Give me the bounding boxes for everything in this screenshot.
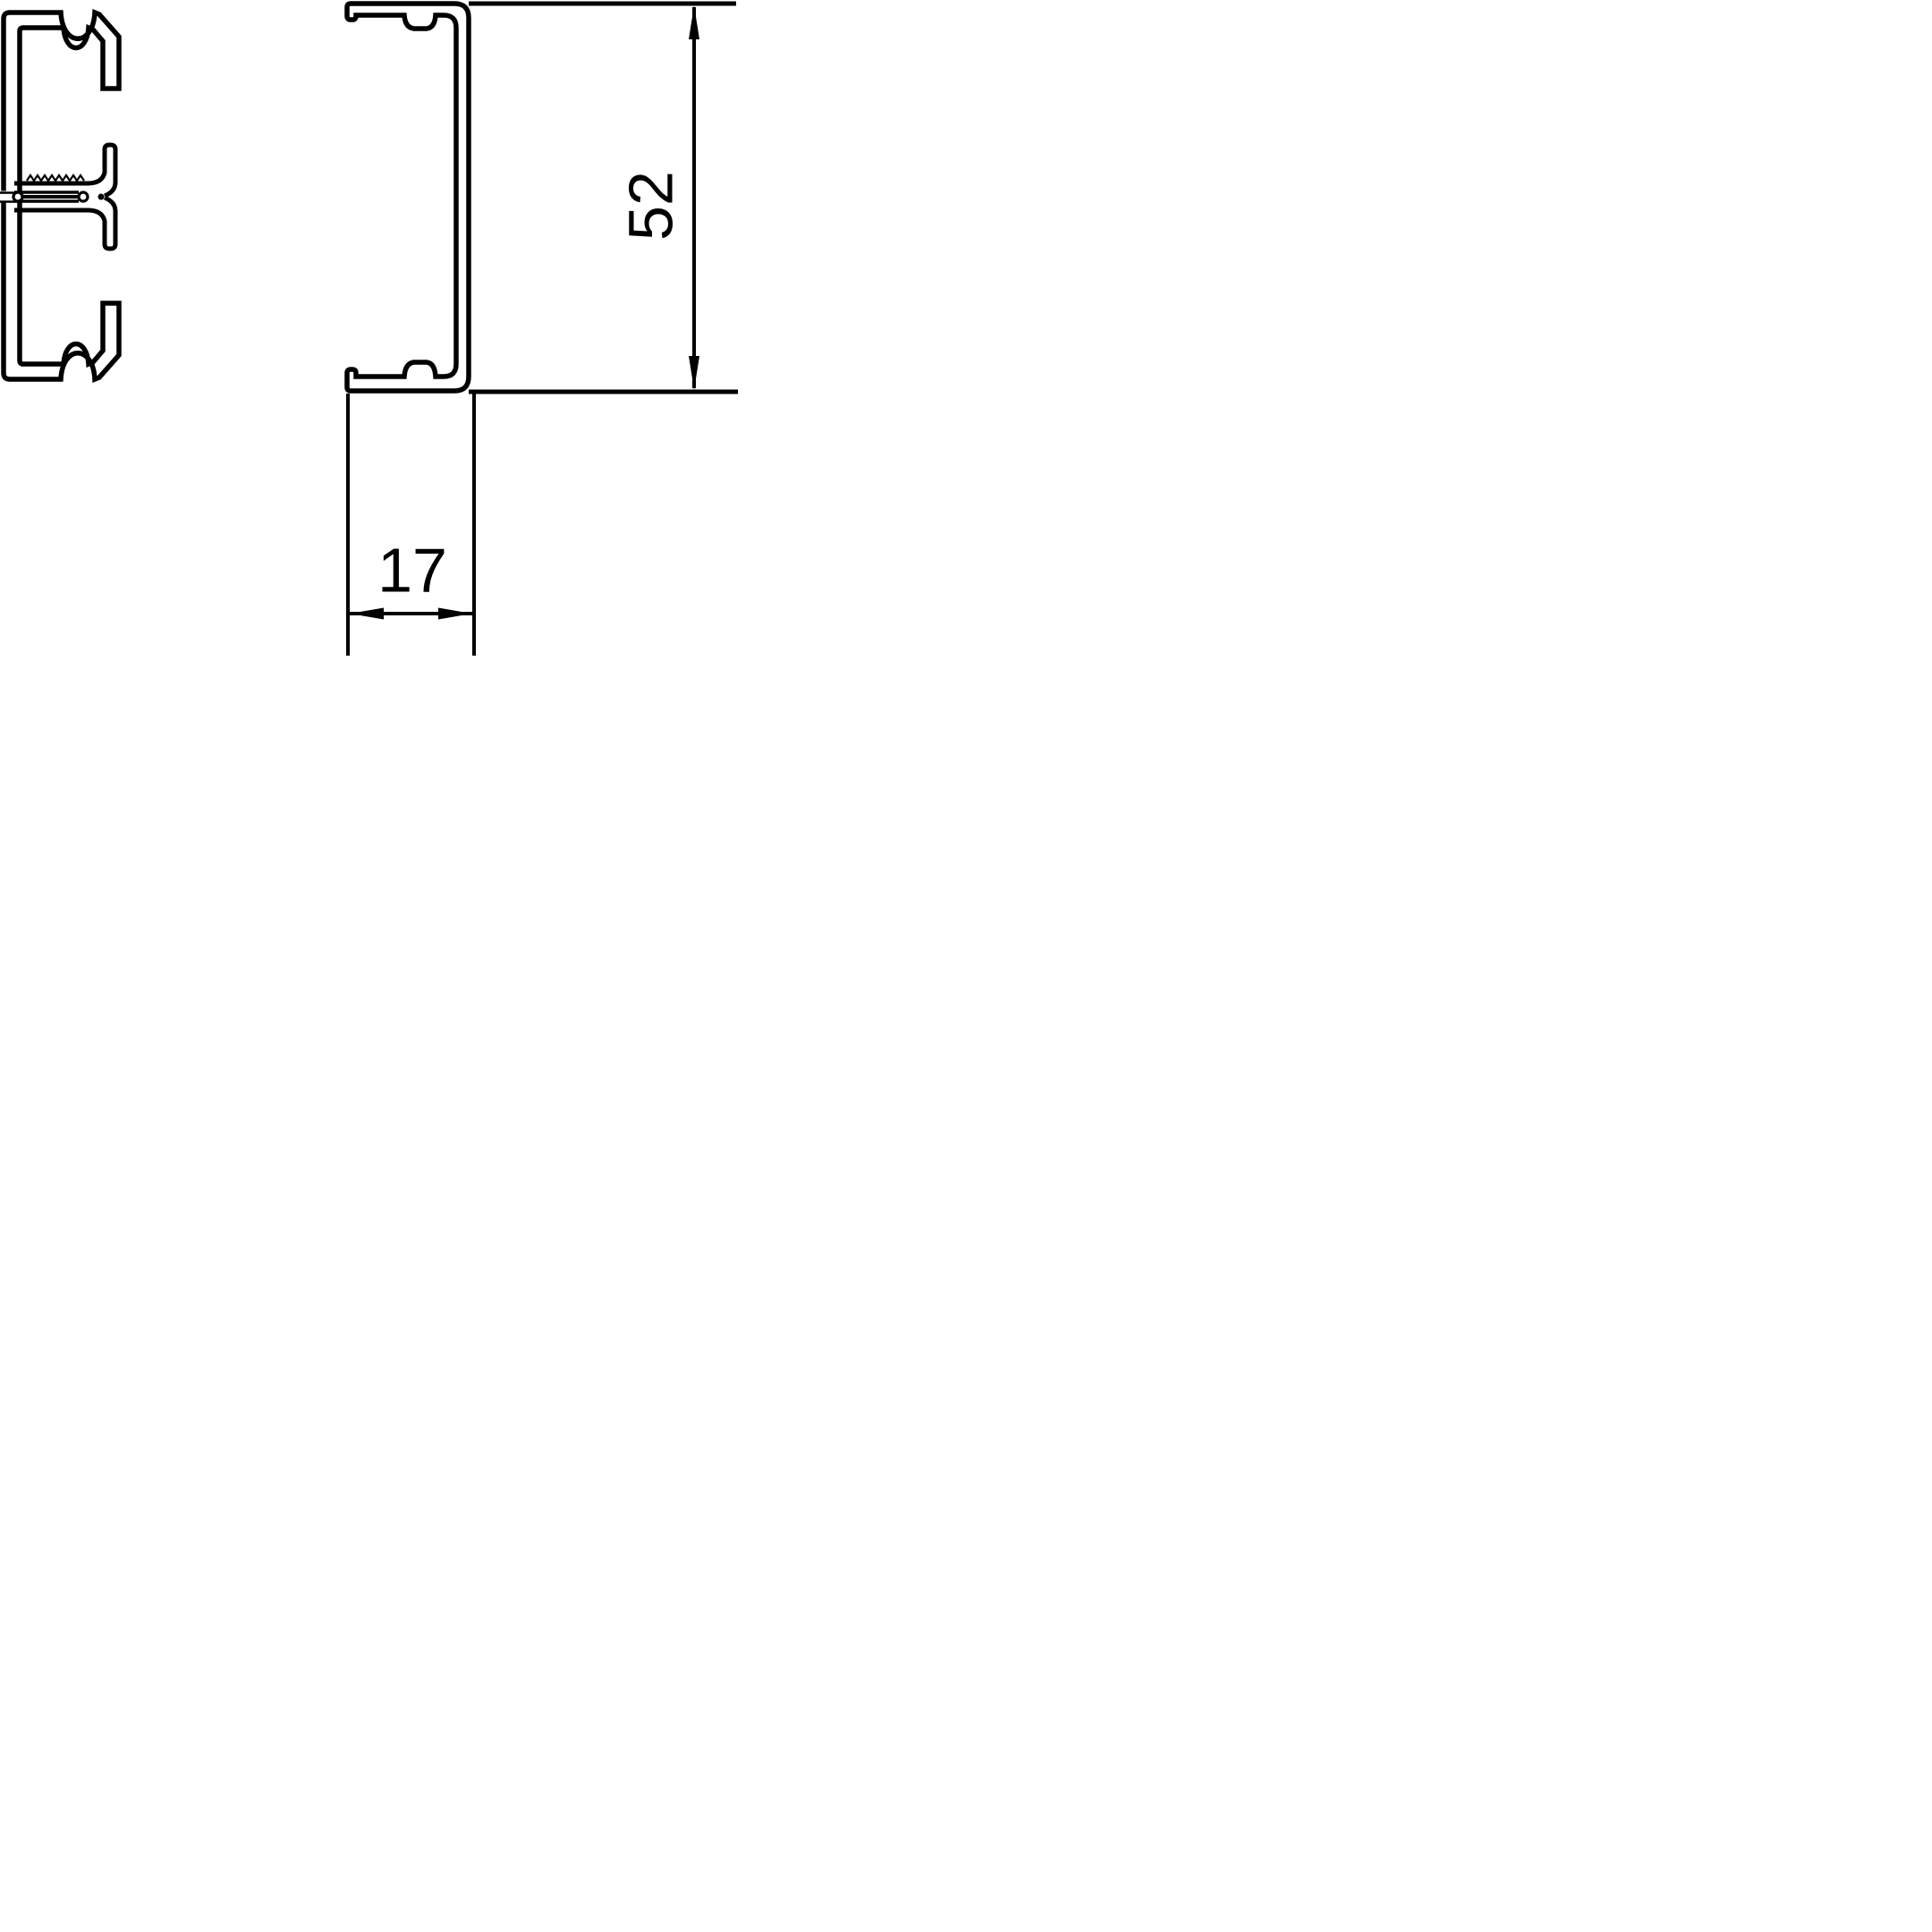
lid-profile-figure bbox=[347, 4, 469, 391]
arrowhead-down bbox=[689, 356, 699, 390]
serration-marks bbox=[27, 175, 84, 181]
divider-lower-leaf bbox=[14, 198, 115, 249]
height-dimension: 52 bbox=[469, 4, 738, 392]
arrowhead-right bbox=[438, 608, 472, 620]
arrowhead-up bbox=[689, 5, 699, 39]
technical-drawing: 52 17 bbox=[0, 0, 1932, 1932]
hinge-circle-left bbox=[13, 192, 22, 201]
hinge-pivot-dot bbox=[98, 194, 105, 200]
lid-outline bbox=[347, 4, 469, 391]
base-profile-figure bbox=[0, 13, 119, 379]
width-dimension-label: 17 bbox=[377, 536, 447, 606]
arrowhead-left bbox=[350, 608, 384, 620]
height-dimension-label: 52 bbox=[616, 171, 686, 241]
divider-upper-leaf bbox=[14, 145, 115, 196]
hinge-circle-right bbox=[79, 192, 88, 201]
width-dimension: 17 bbox=[348, 394, 474, 656]
